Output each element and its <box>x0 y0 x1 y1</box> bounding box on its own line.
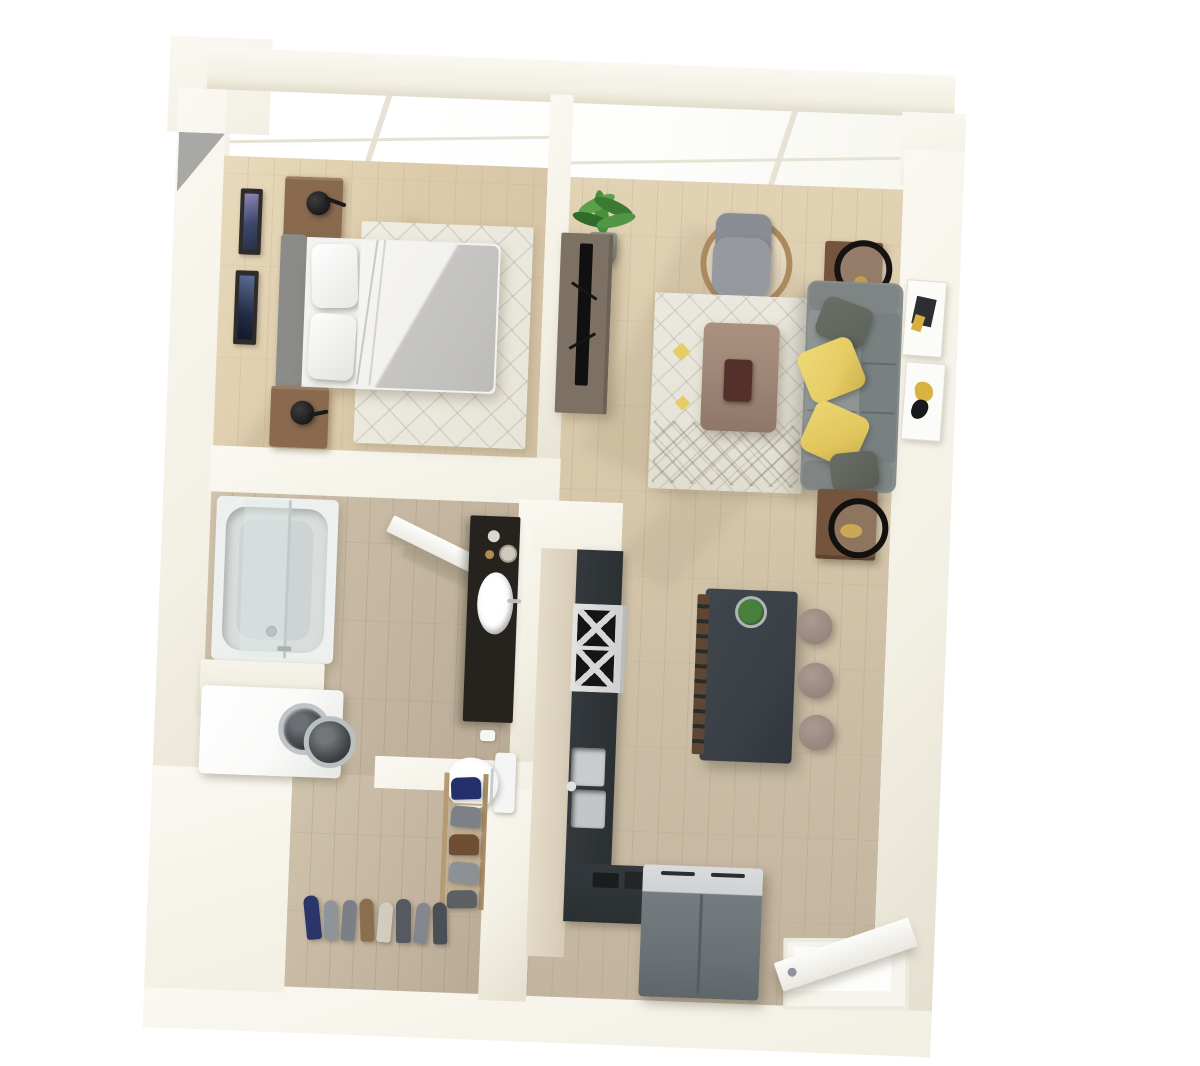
counter-appliance <box>592 872 619 888</box>
shoe <box>396 899 411 943</box>
window-transom-bar <box>219 135 571 143</box>
sink-basin <box>571 789 606 828</box>
toilet-paper-holder <box>480 730 495 742</box>
decor-tray <box>723 359 753 402</box>
vanity-bottle <box>485 550 494 559</box>
apartment-plan <box>133 35 970 1057</box>
bathroom-vanity <box>463 515 521 723</box>
living-wall-art <box>900 361 946 442</box>
rack-shoe <box>451 777 482 800</box>
sink-faucet <box>507 599 521 604</box>
burner-grate <box>575 649 614 686</box>
chair-seat-cushion <box>711 236 771 298</box>
kitchen-double-sink <box>569 747 610 830</box>
kitchen-counter-end-cap <box>533 500 623 555</box>
shoe-row <box>304 889 456 949</box>
fridge-handle <box>711 873 745 878</box>
kitchen-island <box>699 588 798 763</box>
shoe <box>433 902 448 944</box>
shoe <box>340 899 357 941</box>
window-transom-bar <box>570 156 952 165</box>
vanity-bottle <box>499 544 518 563</box>
rack-shoe <box>450 805 482 829</box>
rug-accent <box>675 395 691 411</box>
cushion-seam <box>860 411 895 414</box>
frame-art <box>237 275 254 340</box>
accent-chair <box>699 208 789 305</box>
rug-accent <box>672 343 690 361</box>
shoe <box>303 895 322 940</box>
shoe <box>359 898 374 941</box>
door-handle <box>786 967 797 978</box>
rack-shoe <box>449 834 479 855</box>
bed-duvet <box>355 241 499 392</box>
living-wall-art <box>902 279 947 358</box>
fridge-door-seam <box>696 894 703 994</box>
washer-dryer-unit <box>198 685 343 778</box>
vanity-bottle <box>488 530 500 542</box>
refrigerator <box>638 864 763 1001</box>
frame-art <box>243 193 259 249</box>
bathtub <box>211 496 339 665</box>
rack-shoe <box>448 861 480 885</box>
gas-cooktop <box>570 603 627 693</box>
coffee-table <box>700 322 780 433</box>
bed <box>301 237 501 394</box>
vessel-sink <box>476 572 514 635</box>
floorplan-stage <box>0 0 1200 1066</box>
gray-throw-pillow <box>829 450 881 493</box>
sink-basin <box>570 747 605 786</box>
bed-pillow <box>311 244 358 309</box>
cushion-seam <box>862 362 897 365</box>
island-plant <box>734 596 767 629</box>
bedroom-wall-frame <box>238 188 263 255</box>
bed-pillow <box>307 312 358 381</box>
duvet-fold-line <box>368 240 386 385</box>
shoe <box>324 900 339 940</box>
shoe <box>413 902 431 944</box>
burner-grate <box>577 610 616 647</box>
fridge-handle <box>661 871 695 876</box>
shoe-rack <box>439 773 488 911</box>
laundry-corner-wall-mass <box>144 765 292 992</box>
bathtub-faucet <box>277 646 291 652</box>
sofa <box>800 280 904 494</box>
bedroom-wall-frame <box>233 270 259 345</box>
shower-glass-panel <box>239 499 292 659</box>
shoe <box>376 902 394 943</box>
